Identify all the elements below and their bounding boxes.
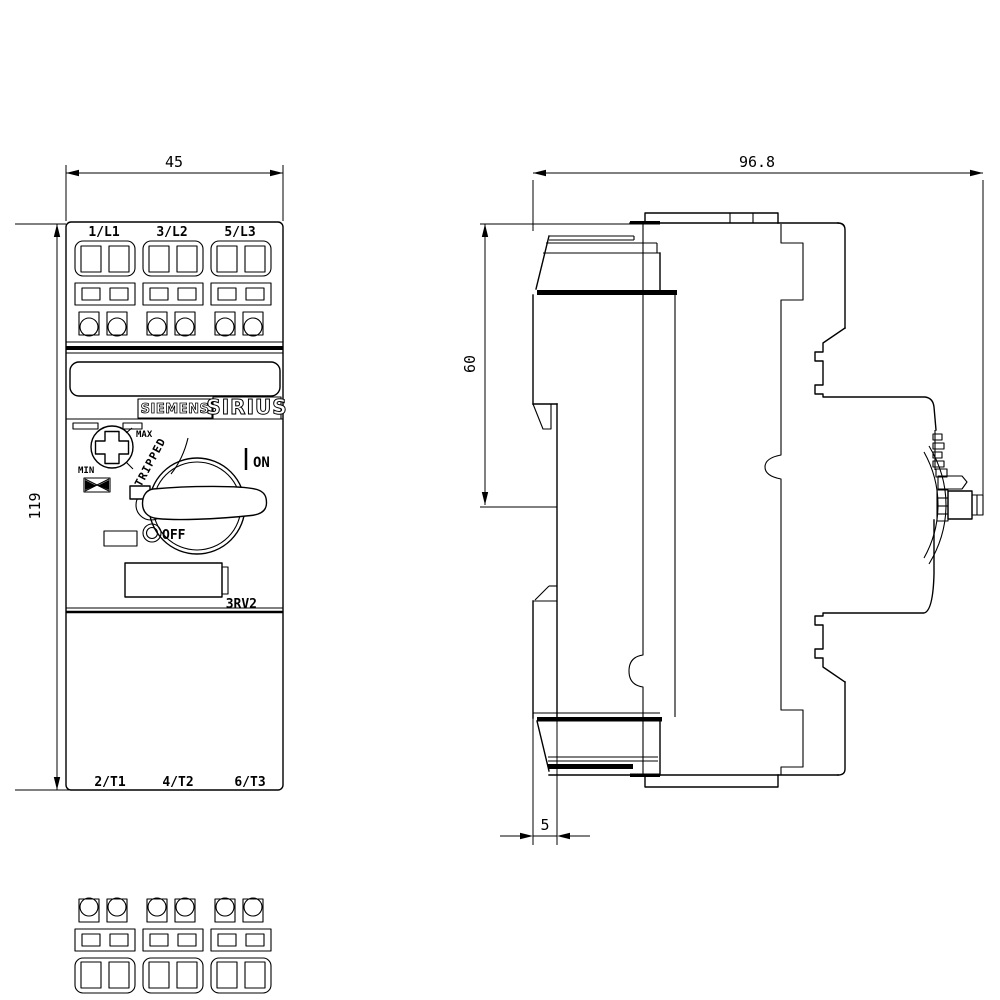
model-label: 3RV2 bbox=[226, 597, 257, 612]
front-view: 1/L1 3/L2 5/L3 SIEMENS SIRIUS MAX MIN bbox=[66, 222, 288, 993]
knob-shaft-detail bbox=[924, 434, 983, 564]
handle-lever bbox=[143, 486, 267, 519]
dim-5-value: 5 bbox=[540, 816, 549, 834]
label-field bbox=[125, 563, 222, 597]
indicator-window-left bbox=[73, 423, 98, 429]
dimension-96-8: 96.8 bbox=[533, 153, 983, 500]
dimension-119: 119 bbox=[15, 224, 73, 790]
front-cover-plate bbox=[70, 362, 280, 396]
on-label: ON bbox=[253, 455, 270, 471]
isolator-symbol-icon bbox=[84, 478, 110, 492]
drawing-svg: 1/L1 3/L2 5/L3 SIEMENS SIRIUS MAX MIN bbox=[0, 0, 1000, 1000]
top-terminal-block bbox=[75, 241, 271, 336]
dimension-5: 5 bbox=[500, 718, 590, 845]
dial-max-label: MAX bbox=[136, 430, 153, 440]
dial-cross-icon bbox=[96, 432, 129, 464]
dim-45-value: 45 bbox=[165, 153, 183, 171]
siemens-logo: SIEMENS bbox=[138, 399, 212, 418]
dimension-drawing: 1/L1 3/L2 5/L3 SIEMENS SIRIUS MAX MIN bbox=[0, 0, 1000, 1000]
dim-96-8-value: 96.8 bbox=[739, 153, 775, 171]
off-marking: OFF bbox=[143, 524, 186, 543]
knob-profile bbox=[948, 491, 972, 519]
side-view bbox=[533, 213, 983, 787]
dimension-60: 60 bbox=[461, 224, 640, 507]
sirius-logo: SIRIUS bbox=[206, 395, 287, 419]
adjustment-dial bbox=[91, 426, 133, 469]
dim-119-value: 119 bbox=[26, 492, 44, 519]
terminal-label-1l1: 1/L1 bbox=[88, 225, 119, 240]
terminal-label-6t3: 6/T3 bbox=[234, 775, 265, 790]
dial-min-label: MIN bbox=[78, 466, 94, 476]
sirius-text: SIRIUS bbox=[206, 395, 287, 419]
dimension-45: 45 bbox=[66, 153, 283, 221]
on-marking: ON bbox=[246, 448, 270, 471]
dim-60-value: 60 bbox=[461, 355, 479, 373]
siemens-text: SIEMENS bbox=[141, 402, 210, 417]
side-top-terminal bbox=[536, 236, 677, 295]
reset-window bbox=[104, 531, 137, 546]
terminal-label-3l2: 3/L2 bbox=[156, 225, 187, 240]
terminal-label-2t1: 2/T1 bbox=[94, 775, 125, 790]
terminal-label-5l3: 5/L3 bbox=[224, 225, 255, 240]
off-label: OFF bbox=[162, 528, 186, 543]
bottom-terminal-block bbox=[75, 898, 271, 993]
tripped-label: TRIPPED bbox=[132, 436, 169, 489]
terminal-label-4t2: 4/T2 bbox=[162, 775, 193, 790]
indicator-window-right bbox=[123, 423, 142, 429]
